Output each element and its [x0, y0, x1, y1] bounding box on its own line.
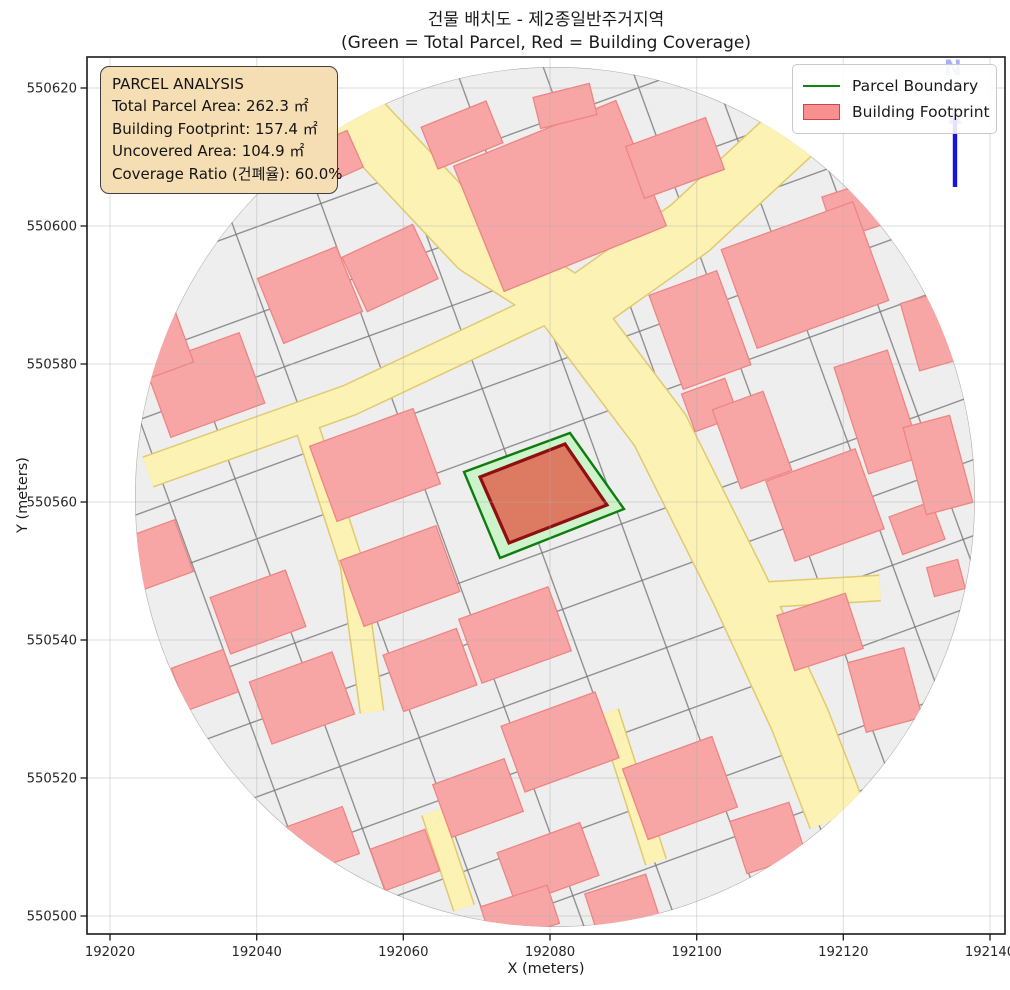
figure: 1920201920401920601920801921001921201921…	[0, 0, 1010, 990]
y-tick-label: 550620	[27, 82, 77, 97]
parcel-boundary-line-swatch	[803, 85, 840, 87]
plot-title: 건물 배치도 - 제2종일반주거지역	[87, 9, 1005, 32]
x-tick-label: 192060	[378, 945, 428, 960]
building-footprint-patch-swatch	[803, 104, 840, 120]
analysis-title: PARCEL ANALYSIS	[112, 73, 326, 95]
parcel-analysis-box: PARCEL ANALYSIS Total Parcel Area: 262.3…	[100, 66, 338, 194]
building-footprint	[106, 277, 193, 382]
analysis-coverage-ratio: Coverage Ratio (건폐율): 60.0%	[112, 163, 326, 185]
x-tick-label: 192120	[818, 945, 868, 960]
x-tick-label: 192100	[672, 945, 722, 960]
x-tick-label: 192080	[525, 945, 575, 960]
legend: Parcel Boundary Building Footprint	[792, 64, 997, 134]
y-tick-label: 550600	[27, 220, 77, 235]
legend-label: Building Footprint	[852, 103, 990, 121]
x-tick-label: 192140	[965, 945, 1010, 960]
analysis-uncovered: Uncovered Area: 104.9 ㎡	[112, 140, 326, 162]
y-tick-label: 550520	[27, 772, 77, 787]
plot-title-block: 건물 배치도 - 제2종일반주거지역 (Green = Total Parcel…	[87, 9, 1005, 55]
legend-item-building-footprint: Building Footprint	[803, 99, 986, 125]
y-tick-label: 550580	[27, 358, 77, 373]
legend-item-parcel-boundary: Parcel Boundary	[803, 73, 986, 99]
x-tick-label: 192040	[232, 945, 282, 960]
x-axis-label: X (meters)	[87, 961, 1005, 977]
y-tick-label: 550500	[27, 910, 77, 925]
legend-label: Parcel Boundary	[852, 77, 978, 95]
analysis-total-area: Total Parcel Area: 262.3 ㎡	[112, 95, 326, 117]
x-tick-label: 192020	[85, 945, 135, 960]
y-tick-label: 550540	[27, 634, 77, 649]
y-axis-label: Y (meters)	[15, 435, 31, 555]
y-tick-label: 550560	[27, 496, 77, 511]
analysis-footprint: Building Footprint: 157.4 ㎡	[112, 118, 326, 140]
plot-subtitle: (Green = Total Parcel, Red = Building Co…	[87, 32, 1005, 55]
road	[742, 588, 880, 596]
